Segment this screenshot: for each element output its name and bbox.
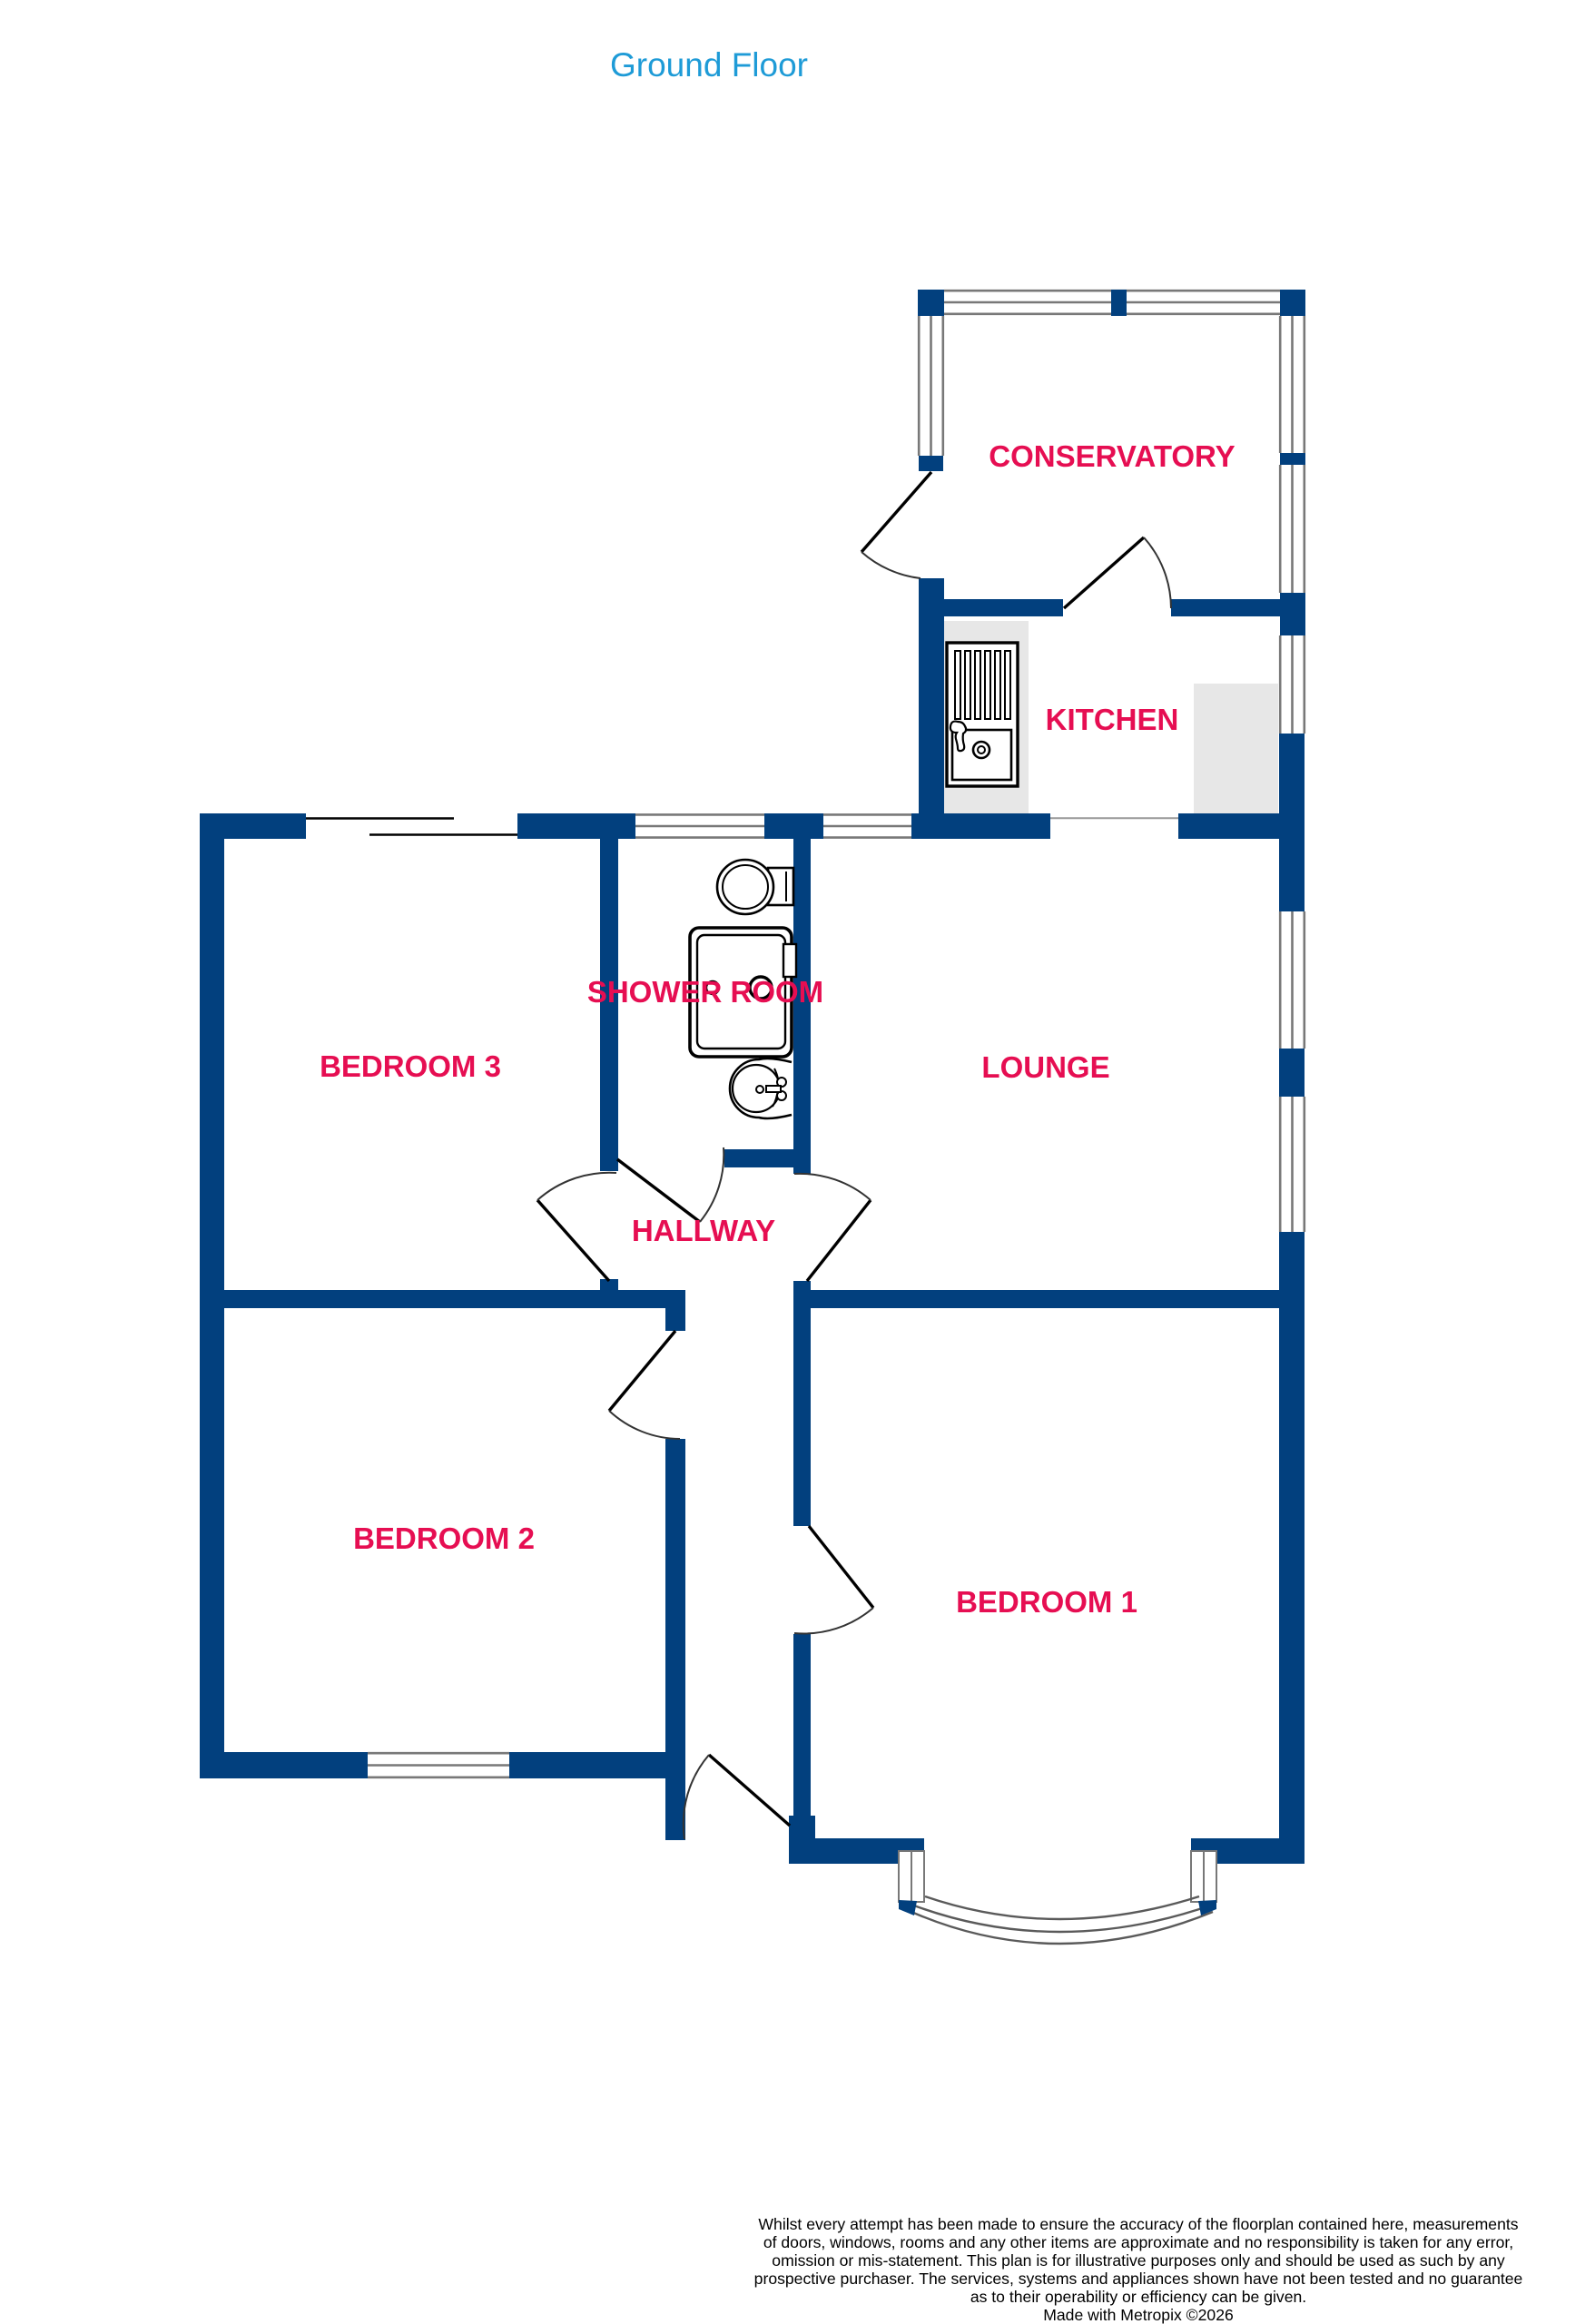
svg-text:HALLWAY: HALLWAY [632, 1214, 775, 1247]
svg-text:Ground Floor: Ground Floor [610, 46, 808, 84]
svg-text:LOUNGE: LOUNGE [981, 1050, 1109, 1084]
svg-text:prospective purchaser. The ser: prospective purchaser. The services, sys… [754, 2270, 1523, 2288]
svg-text:Made with Metropix ©2026: Made with Metropix ©2026 [1043, 2306, 1234, 2324]
svg-text:BEDROOM 3: BEDROOM 3 [320, 1049, 501, 1083]
svg-text:SHOWER ROOM: SHOWER ROOM [587, 975, 823, 1009]
svg-text:CONSERVATORY: CONSERVATORY [989, 439, 1235, 473]
svg-text:omission or mis-statement. Thi: omission or mis-statement. This plan is … [772, 2251, 1505, 2270]
svg-text:as to their operability or eff: as to their operability or efficiency ca… [970, 2288, 1306, 2306]
svg-text:Whilst every attempt has been: Whilst every attempt has been made to en… [758, 2215, 1518, 2233]
svg-text:of doors, windows, rooms and a: of doors, windows, rooms and any other i… [763, 2233, 1513, 2251]
svg-text:KITCHEN: KITCHEN [1046, 703, 1179, 736]
svg-text:BEDROOM 1: BEDROOM 1 [956, 1585, 1137, 1619]
svg-text:BEDROOM 2: BEDROOM 2 [353, 1521, 535, 1555]
